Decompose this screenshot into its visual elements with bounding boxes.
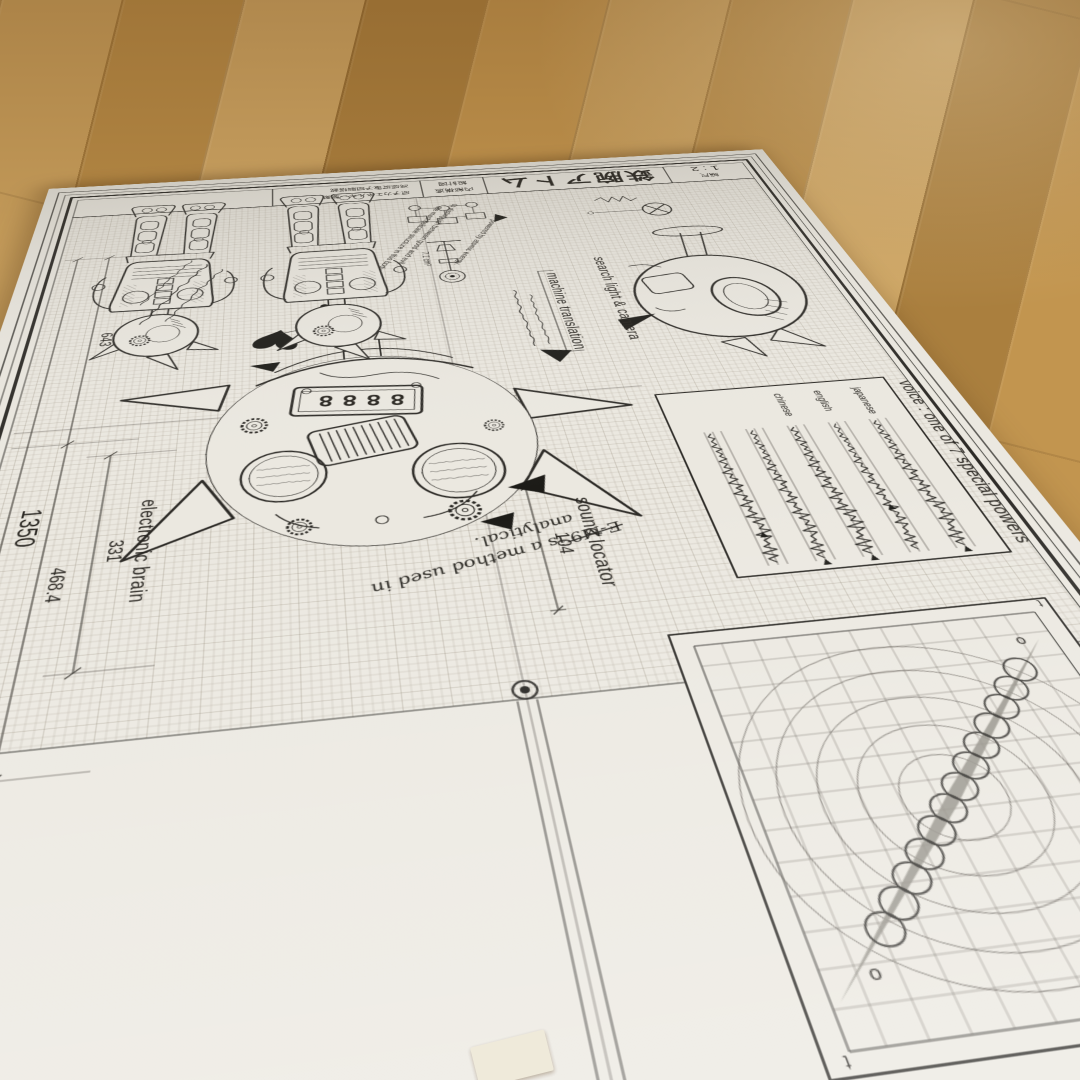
photo-scene: o o t t ear : one of 7 special powers: [0, 0, 1080, 1080]
